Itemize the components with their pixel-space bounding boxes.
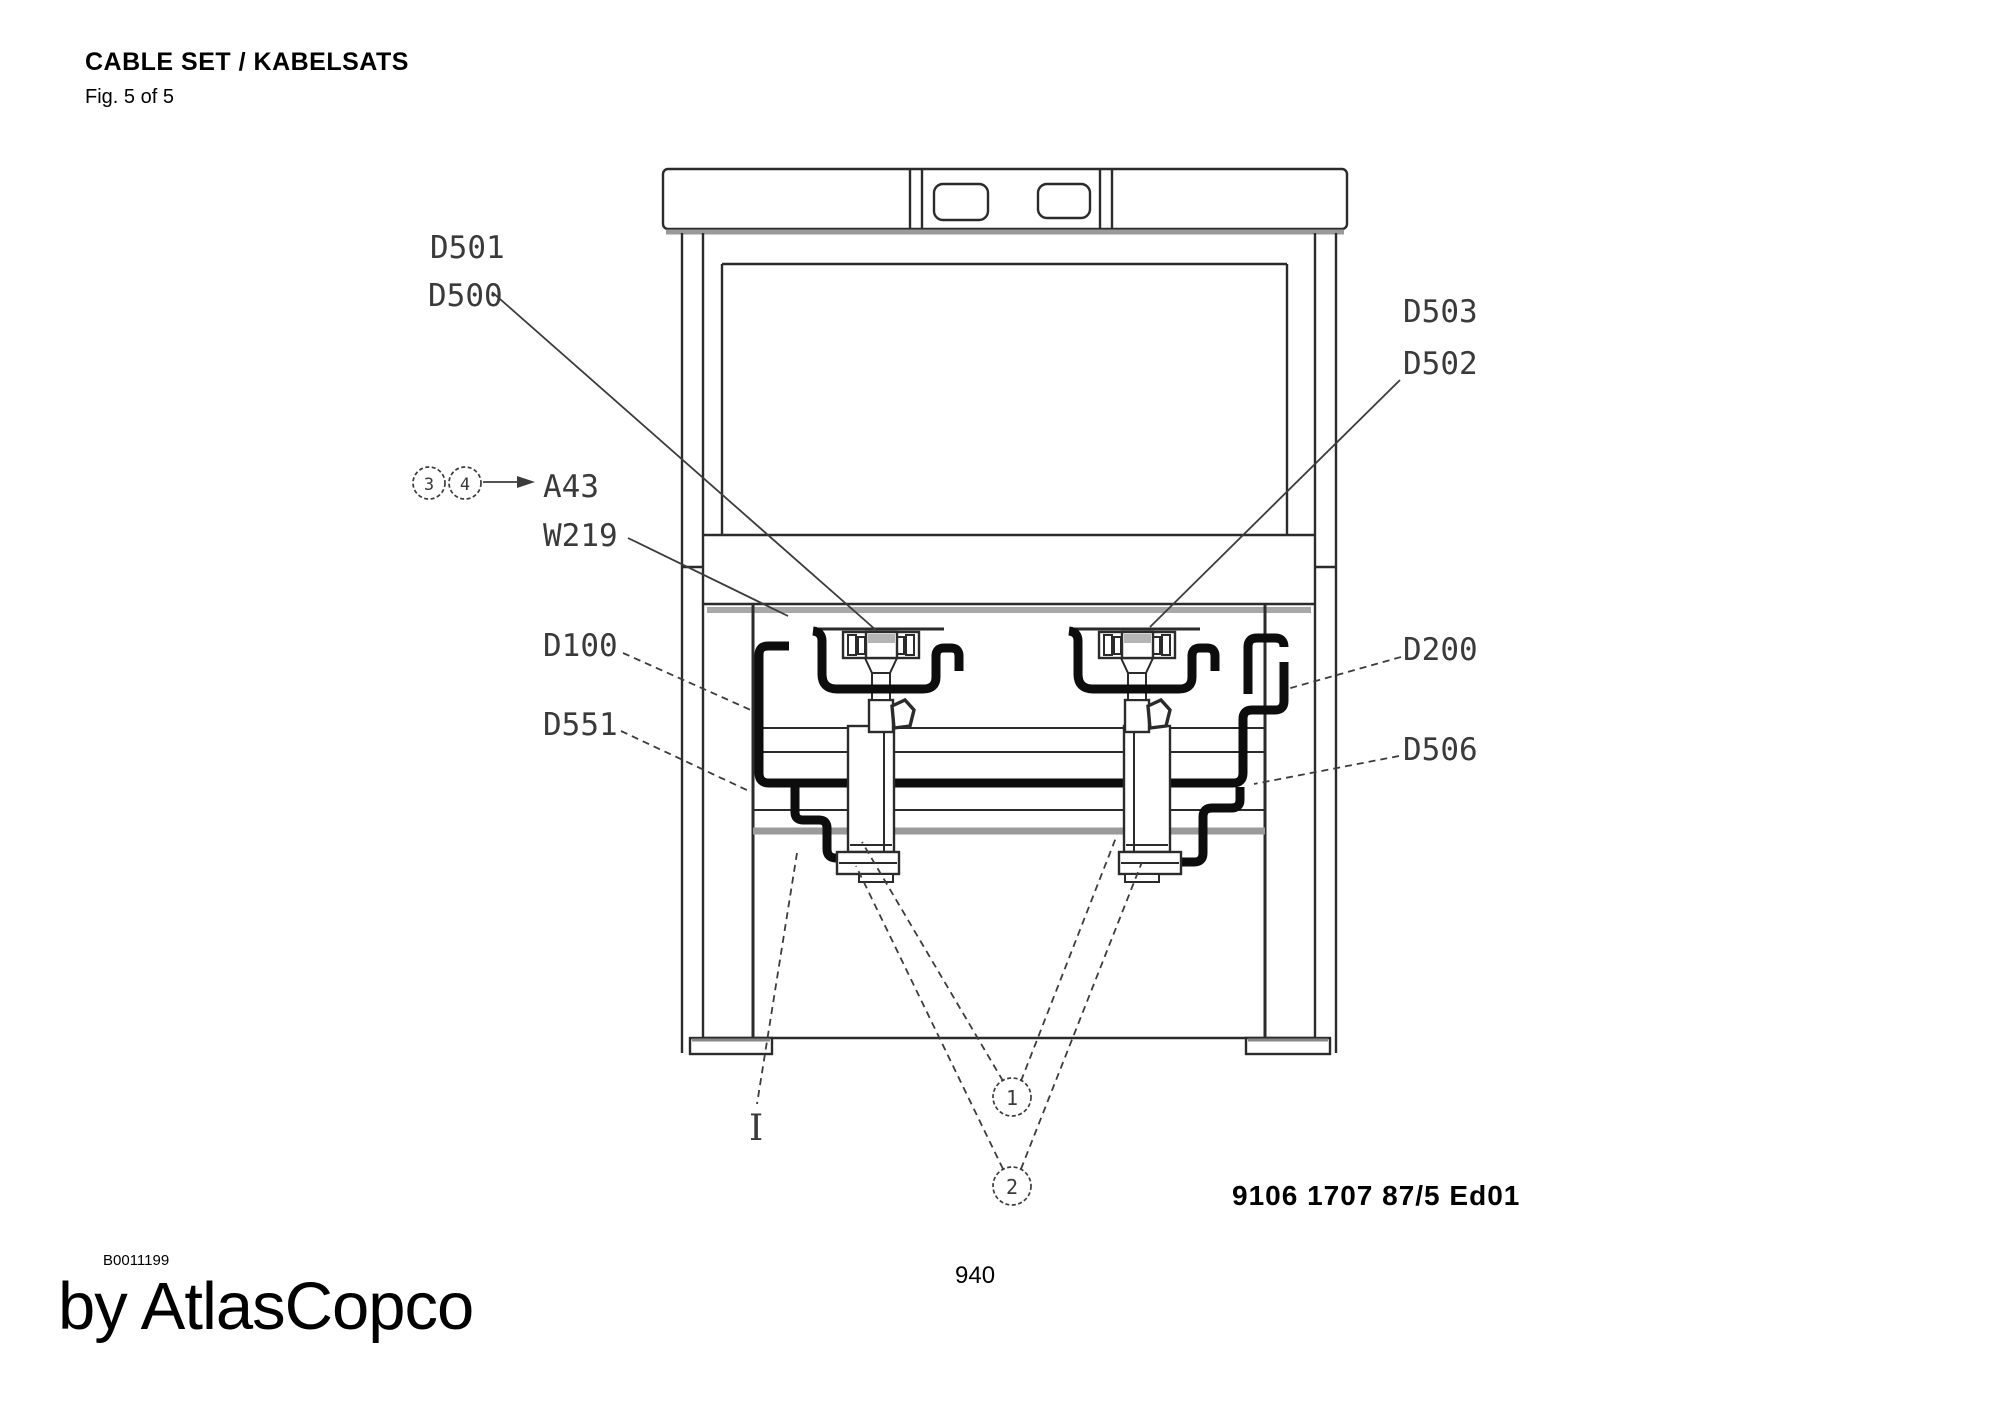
svg-text:4: 4 bbox=[460, 475, 470, 495]
document-number: 9106 1707 87/5 Ed01 bbox=[1232, 1180, 1520, 1212]
manual-page: CABLE SET / KABELSATS Fig. 5 of 5 bbox=[0, 0, 2000, 1415]
connector-assembly-right bbox=[1074, 629, 1200, 882]
part-label-d501: D501 bbox=[430, 230, 505, 266]
page-number: 940 bbox=[955, 1262, 995, 1290]
callout-bubble-3: 3 bbox=[413, 467, 445, 499]
callout-bubble-1: 1 bbox=[993, 1078, 1031, 1116]
leader-d503-d502 bbox=[1150, 380, 1400, 627]
leader-d551 bbox=[621, 731, 751, 792]
callout-bubbles: 3 4 1 2 bbox=[413, 467, 1031, 1205]
leader-section-i bbox=[757, 853, 797, 1104]
leader-d100 bbox=[623, 653, 753, 711]
part-label-d506: D506 bbox=[1403, 732, 1478, 768]
leader-d506 bbox=[1254, 756, 1399, 784]
watermark-text: by AtlasCopco bbox=[58, 1268, 473, 1345]
technical-drawing: 3 4 1 2 D501 D500 D503 D502 A43 W219 D10… bbox=[0, 0, 2000, 1415]
svg-text:3: 3 bbox=[424, 475, 434, 495]
cable-d100 bbox=[759, 646, 1284, 783]
part-label-d100: D100 bbox=[543, 628, 618, 664]
callout-bubble-4: 4 bbox=[449, 467, 481, 499]
leader-callout1-right bbox=[1021, 835, 1117, 1081]
image-reference: B0011199 bbox=[103, 1252, 169, 1269]
part-label-d551: D551 bbox=[543, 707, 618, 743]
svg-text:2: 2 bbox=[1006, 1175, 1018, 1199]
cable-right-drop bbox=[1168, 787, 1240, 862]
section-mark-label: I bbox=[749, 1108, 763, 1149]
connector-assembly-left bbox=[818, 629, 944, 882]
leader-callout2-right bbox=[1021, 862, 1142, 1169]
part-label-d503: D503 bbox=[1403, 294, 1478, 330]
part-label-d200: D200 bbox=[1403, 632, 1478, 668]
part-label-w219: W219 bbox=[543, 518, 618, 554]
part-labels: D501 D500 D503 D502 A43 W219 D100 D551 D… bbox=[428, 230, 1478, 1149]
part-label-a43: A43 bbox=[543, 469, 599, 505]
svg-text:1: 1 bbox=[1006, 1086, 1018, 1110]
leader-callout2-left bbox=[856, 866, 1003, 1169]
cable-left-drop bbox=[795, 787, 853, 858]
part-label-d502: D502 bbox=[1403, 346, 1478, 382]
machine-frame bbox=[663, 169, 1347, 1054]
leader-d501-d500 bbox=[492, 292, 877, 631]
leader-d200 bbox=[1287, 657, 1401, 689]
a43-arrowhead-icon bbox=[517, 476, 535, 488]
callout-bubble-2: 2 bbox=[993, 1167, 1031, 1205]
part-label-d500: D500 bbox=[428, 278, 503, 314]
